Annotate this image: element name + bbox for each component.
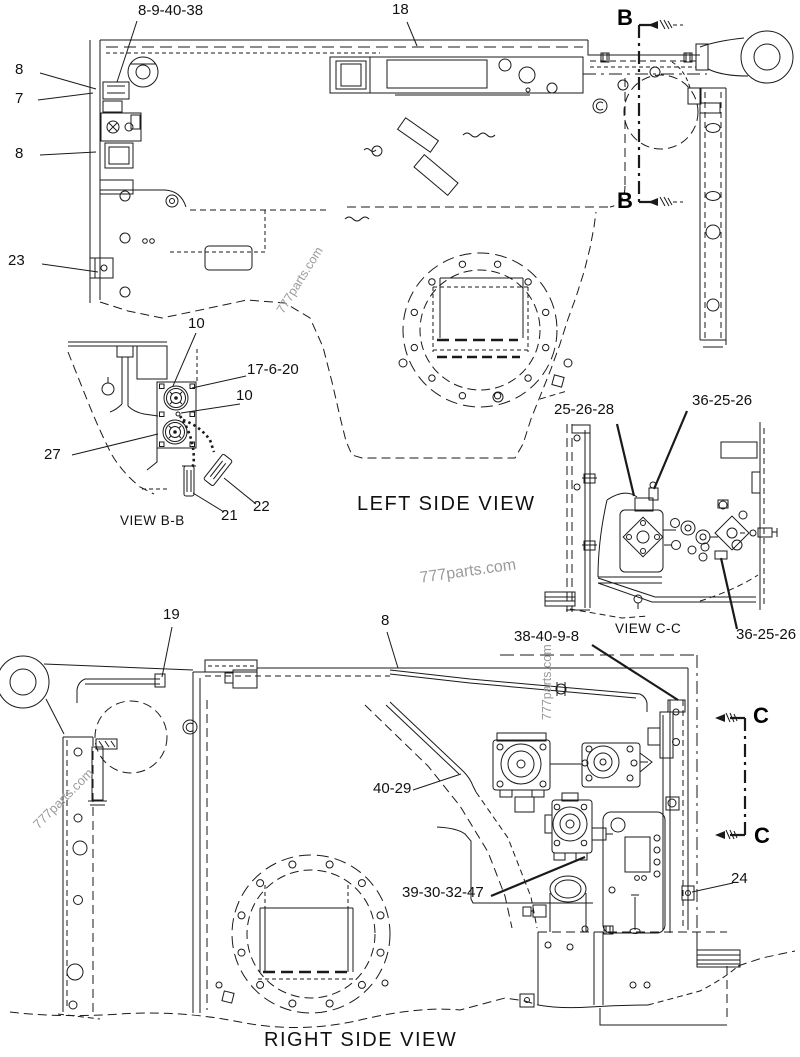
callout-8-top: 8 <box>15 62 23 77</box>
callout-10-top: 10 <box>188 316 205 331</box>
section-marker-b-bottom: B <box>617 190 633 212</box>
callout-23: 23 <box>8 253 25 268</box>
view-bb-art <box>68 333 256 512</box>
callout-21: 21 <box>221 508 238 523</box>
callout-7: 7 <box>15 91 23 106</box>
view-bb-title: VIEW B-B <box>120 514 185 528</box>
callout-8-mid: 8 <box>15 146 23 161</box>
callout-36-25-26-bottom: 36-25-26 <box>736 627 796 642</box>
callout-17-6-20: 17-6-20 <box>247 362 299 377</box>
callout-39-30-32-47: 39-30-32-47 <box>402 885 484 900</box>
callout-10-mid: 10 <box>236 388 253 403</box>
callout-22: 22 <box>253 499 270 514</box>
diagram-line-art <box>0 0 800 1057</box>
left-side-view-art <box>38 20 793 458</box>
callout-19: 19 <box>163 607 180 622</box>
callout-25-26-28: 25-26-28 <box>554 402 614 417</box>
left-side-view-title: LEFT SIDE VIEW <box>357 494 535 514</box>
callout-8-9-40-38: 8-9-40-38 <box>138 3 203 18</box>
callout-27: 27 <box>44 447 61 462</box>
section-marker-b-top: B <box>617 7 633 29</box>
callout-40-29: 40-29 <box>373 781 411 796</box>
view-cc-art <box>540 391 777 629</box>
view-cc-title: VIEW C-C <box>615 622 681 636</box>
parts-diagram-page: 8-9-40-38 18 8 7 8 23 B B LEFT SIDE VIEW… <box>0 0 800 1057</box>
callout-8-bottom: 8 <box>381 613 389 628</box>
watermark-vertical: 777parts.com <box>541 627 554 737</box>
callout-24: 24 <box>731 871 748 886</box>
callout-36-25-26-top: 36-25-26 <box>692 393 752 408</box>
callout-18: 18 <box>392 2 409 17</box>
section-marker-c-top: C <box>753 705 769 727</box>
right-side-view-art <box>0 627 795 1028</box>
right-side-view-title: RIGHT SIDE VIEW <box>264 1030 457 1050</box>
section-marker-c-bottom: C <box>754 825 770 847</box>
